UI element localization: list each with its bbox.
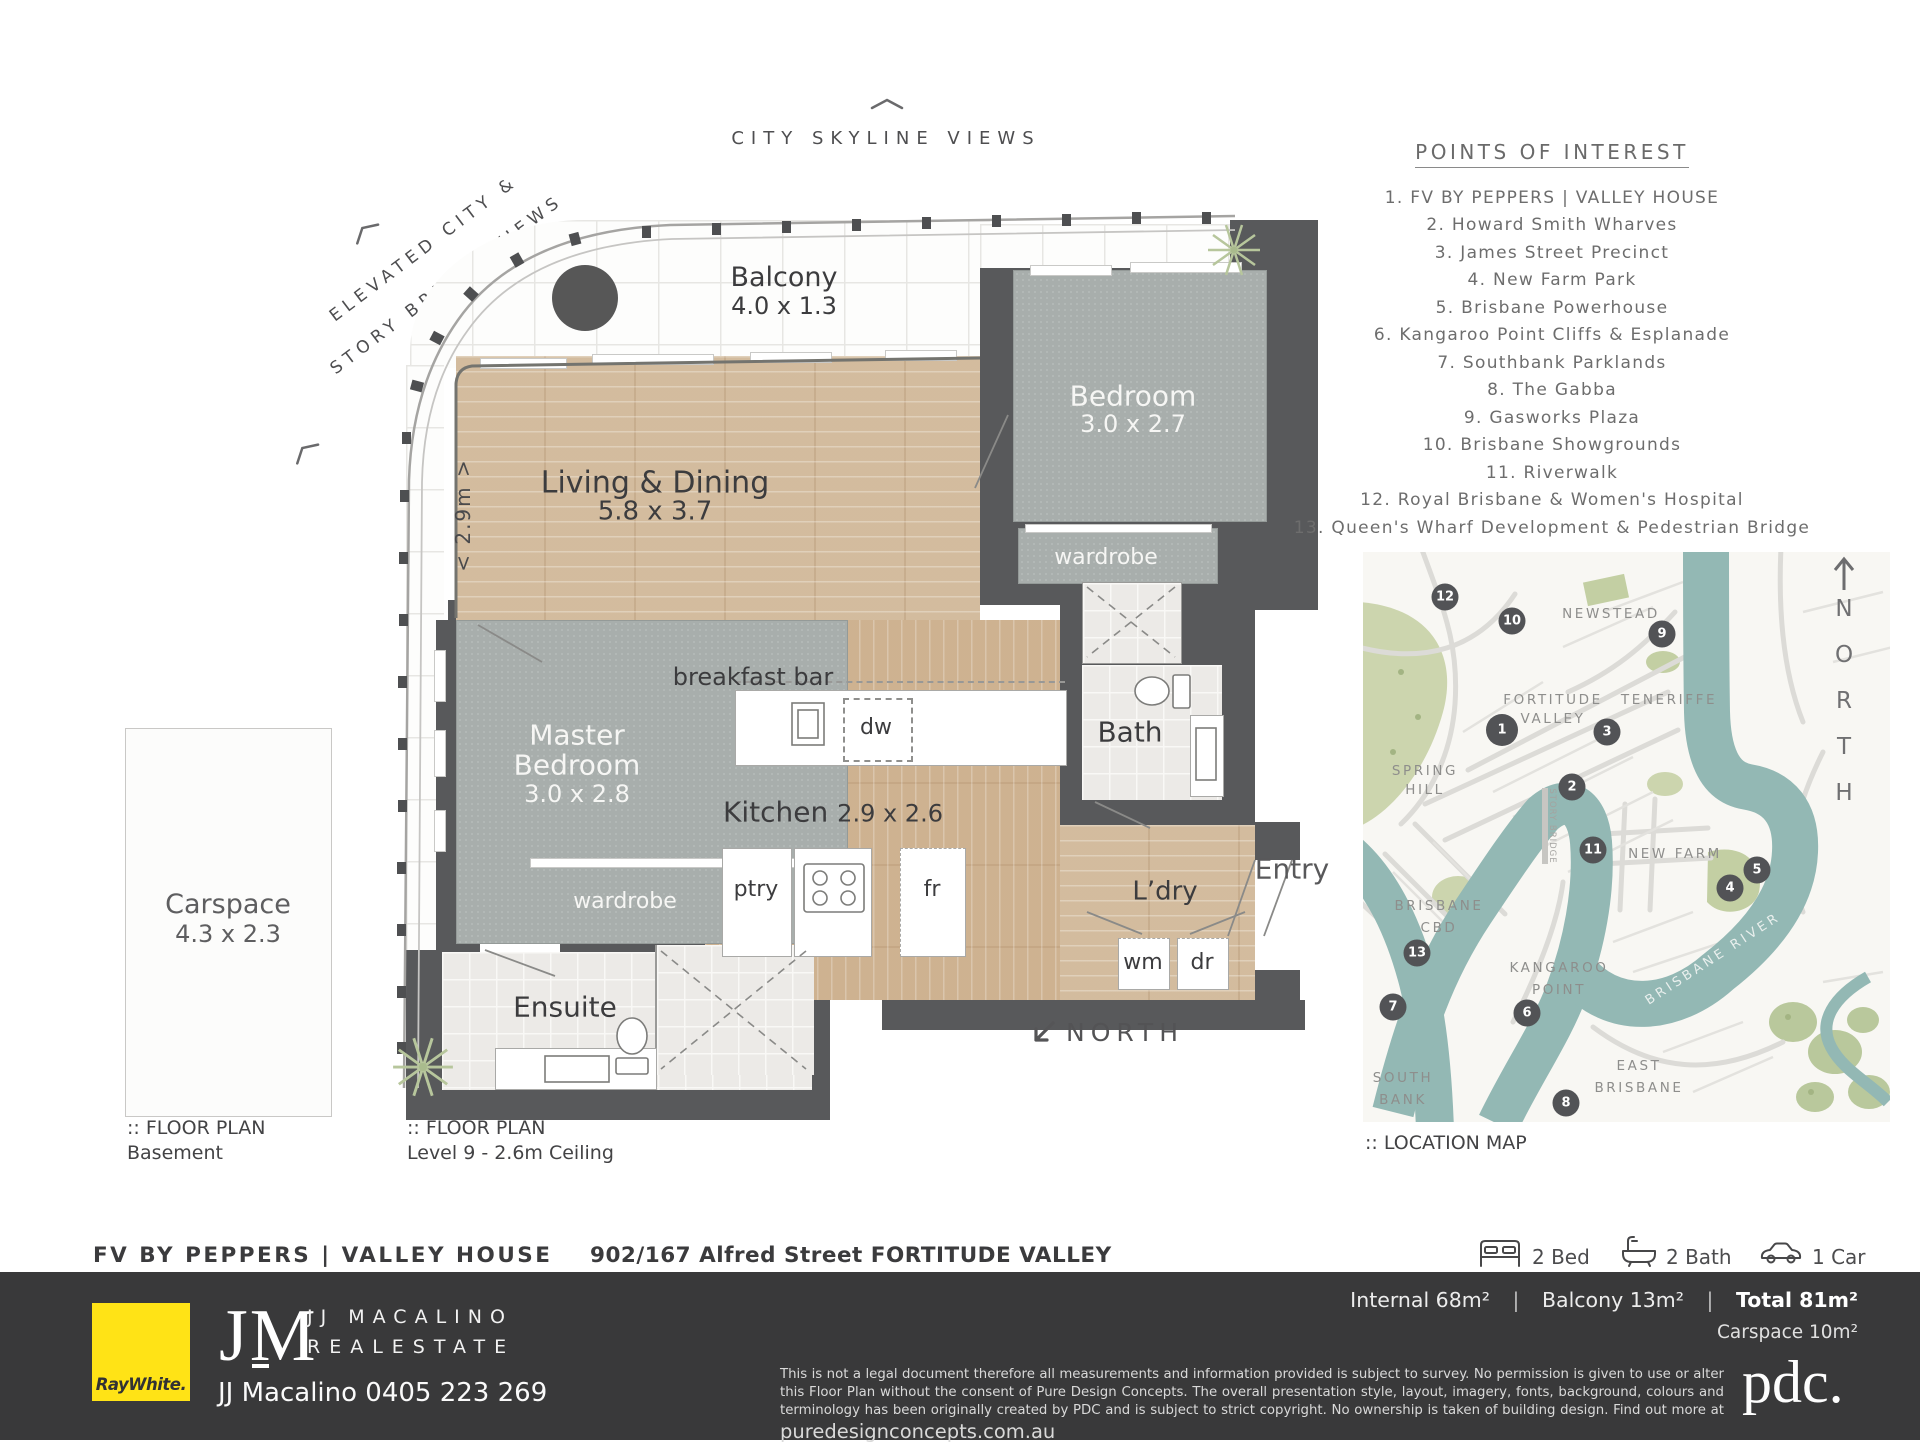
- poi-item: 9. Gasworks Plaza: [1192, 408, 1912, 428]
- total-area: Total 81m²: [1736, 1288, 1858, 1312]
- svg-text:3: 3: [1602, 725, 1611, 740]
- kitchen-dims: 2.9 x 2.6: [837, 800, 943, 828]
- elevated-views-caret2-icon: [288, 434, 323, 467]
- poi-title: POINTS OF INTEREST: [1415, 140, 1689, 168]
- marker-3: 3: [1594, 719, 1621, 746]
- floor-plan-sub: Level 9 - 2.6m Ceiling: [407, 1141, 614, 1166]
- dim-2-9m: < 2.9m >: [452, 458, 474, 572]
- footer: RayWhite. JM JJ MACALINO REALESTATE JJ M…: [0, 1272, 1920, 1440]
- carspace-label: Carspace: [165, 890, 291, 920]
- internal-area: Internal 68m²: [1350, 1288, 1490, 1312]
- city-views-label: CITY SKYLINE VIEWS: [731, 129, 1040, 149]
- agency-name-1: JJ MACALINO: [307, 1306, 513, 1328]
- poi-item: 6. Kangaroo Point Cliffs & Esplanade: [1192, 325, 1912, 345]
- floor-plan-tag: :: FLOOR PLAN: [127, 1116, 266, 1141]
- marker-4: 4: [1717, 875, 1744, 902]
- location-map: STORY BRIDGE BRISBANE RIVER NEWSTEAD FOR…: [1363, 552, 1890, 1122]
- agent-contact: JJ Macalino 0405 223 269: [218, 1378, 547, 1408]
- marker-10: 10: [1499, 608, 1526, 635]
- balcony-area: Balcony 13m²: [1542, 1288, 1684, 1312]
- separator: |: [1512, 1288, 1519, 1312]
- suburb-newstead: NEWSTEAD: [1562, 606, 1660, 622]
- laundry-label: L’dry: [1132, 878, 1197, 907]
- fridge-label: fr: [924, 878, 941, 902]
- carspace-area: Carspace 10m²: [1717, 1322, 1858, 1343]
- master-label-2: Bedroom: [514, 751, 641, 782]
- separator: |: [1707, 1288, 1714, 1312]
- map-north-label: NORTH: [1831, 596, 1857, 826]
- marker-6: 6: [1514, 1000, 1541, 1027]
- disclaimer-text: This is not a legal document therefore a…: [780, 1367, 1724, 1418]
- bath-label: Bath: [1097, 718, 1162, 749]
- kitchen-name: Kitchen: [723, 796, 828, 829]
- svg-text:1: 1: [1497, 723, 1506, 738]
- master-label-1: Master: [529, 721, 625, 752]
- poi-item: 1. FV BY PEPPERS | VALLEY HOUSE: [1192, 188, 1912, 208]
- bed-icon: [1478, 1236, 1522, 1268]
- points-of-interest: POINTS OF INTEREST 1. FV BY PEPPERS | VA…: [1192, 140, 1912, 545]
- poi-item: 7. Southbank Parklands: [1192, 353, 1912, 373]
- svg-text:5: 5: [1752, 863, 1761, 878]
- plan-north: NORTH: [1030, 1018, 1184, 1047]
- master-dims: 3.0 x 2.8: [524, 781, 630, 807]
- beds-value: 2 Bed: [1532, 1245, 1590, 1269]
- marker-5: 5: [1744, 857, 1771, 884]
- car-icon: [1758, 1237, 1804, 1267]
- svg-text:8: 8: [1561, 1096, 1570, 1111]
- suburb-fortitude1: FORTITUDE: [1503, 692, 1602, 708]
- suburb-cbd1: BRISBANE: [1394, 898, 1483, 914]
- suburb-kangaroo2: POINT: [1532, 982, 1586, 998]
- balcony-table: [552, 265, 618, 331]
- story-bridge-label: STORY BRIDGE: [1547, 788, 1557, 863]
- marker-7: 7: [1380, 994, 1407, 1021]
- entry-label: Entry: [1255, 855, 1330, 886]
- suburb-kangaroo1: KANGAROO: [1509, 960, 1608, 976]
- disclaimer: This is not a legal document therefore a…: [780, 1366, 1724, 1446]
- city-views-caret-icon: [868, 96, 906, 111]
- floor-plan-sub: Basement: [127, 1141, 266, 1166]
- svg-text:11: 11: [1584, 843, 1602, 858]
- plan-overlay: [330, 170, 1340, 1170]
- poi-item: 2. Howard Smith Wharves: [1192, 215, 1912, 235]
- svg-text:9: 9: [1657, 627, 1666, 642]
- baths-value: 2 Bath: [1666, 1245, 1732, 1269]
- suburb-spring1: SPRING: [1392, 763, 1458, 779]
- bedroom-dims: 3.0 x 2.7: [1080, 411, 1186, 437]
- pdc-logo: pdc.: [1742, 1348, 1844, 1417]
- suburb-east2: BRISBANE: [1594, 1080, 1683, 1096]
- svg-text:7: 7: [1388, 1000, 1397, 1015]
- raywhite-logo: RayWhite.: [92, 1303, 190, 1401]
- balcony-dims: 4.0 x 1.3: [731, 293, 837, 319]
- ensuite-label: Ensuite: [513, 993, 617, 1024]
- svg-text:13: 13: [1408, 946, 1426, 961]
- poi-item: 10. Brisbane Showgrounds: [1192, 435, 1912, 455]
- suburb-spring2: HILL: [1405, 782, 1445, 798]
- jm-underscore: [252, 1364, 269, 1368]
- north-arrow-sw-icon: [1030, 1020, 1056, 1046]
- poi-item: 3. James Street Precinct: [1192, 243, 1912, 263]
- poi-item: 11. Riverwalk: [1192, 463, 1912, 483]
- marker-12: 12: [1432, 584, 1459, 611]
- breakfast-bar-label: breakfast bar: [673, 664, 833, 690]
- svg-text:2: 2: [1567, 780, 1576, 795]
- suburb-newfarm: NEW FARM: [1628, 846, 1722, 862]
- marker-1: 1: [1486, 714, 1518, 746]
- area-metrics: Internal 68m² | Balcony 13m² | Total 81m…: [1350, 1288, 1858, 1312]
- svg-text:10: 10: [1503, 614, 1521, 629]
- agency-name-2: REALESTATE: [307, 1336, 515, 1358]
- kitchen-label: Kitchen 2.9 x 2.6: [723, 798, 943, 829]
- svg-text:4: 4: [1725, 881, 1734, 896]
- bath-icon: [1620, 1234, 1658, 1268]
- marker-2: 2: [1559, 774, 1586, 801]
- poi-item: 5. Brisbane Powerhouse: [1192, 298, 1912, 318]
- basement-plan-label: :: FLOOR PLAN Basement: [127, 1116, 266, 1166]
- floor-plan-tag: :: FLOOR PLAN: [407, 1116, 614, 1141]
- poi-item: 8. The Gabba: [1192, 380, 1912, 400]
- bedroom-label: Bedroom: [1070, 382, 1197, 413]
- property-name: FV BY PEPPERS | VALLEY HOUSE: [93, 1243, 552, 1268]
- plan-north-label: NORTH: [1066, 1018, 1184, 1047]
- marker-13: 13: [1404, 940, 1431, 967]
- wardrobe-label: wardrobe: [1054, 546, 1158, 570]
- svg-text:6: 6: [1522, 1006, 1531, 1021]
- cars-value: 1 Car: [1812, 1245, 1866, 1269]
- suburb-fortitude2: VALLEY: [1520, 711, 1585, 727]
- property-address: 902/167 Alfred Street FORTITUDE VALLEY: [590, 1243, 1112, 1268]
- raywhite-label: RayWhite.: [92, 1375, 190, 1394]
- marker-8: 8: [1553, 1090, 1580, 1117]
- suburb-east1: EAST: [1617, 1058, 1662, 1074]
- svg-text:12: 12: [1436, 590, 1454, 605]
- level9-plan-label: :: FLOOR PLAN Level 9 - 2.6m Ceiling: [407, 1116, 614, 1166]
- wm-label: wm: [1123, 951, 1162, 975]
- location-map-caption: :: LOCATION MAP: [1365, 1132, 1527, 1154]
- pantry-label: ptry: [734, 878, 779, 902]
- dishwasher-label: dw: [860, 716, 892, 740]
- wardrobe-label: wardrobe: [573, 890, 677, 914]
- suburb-south2: BANK: [1379, 1092, 1427, 1108]
- floorplan-flyer: { "header": { "city_views": "CITY SKYLIN…: [0, 0, 1920, 1440]
- poi-item: 4. New Farm Park: [1192, 270, 1912, 290]
- dryer-label: dr: [1190, 951, 1213, 975]
- marker-11: 11: [1580, 837, 1607, 864]
- living-label: Living & Dining: [541, 467, 770, 500]
- suburb-south1: SOUTH: [1373, 1070, 1433, 1086]
- carspace-dims: 4.3 x 2.3: [175, 921, 281, 947]
- map-north-arrow-icon: [1830, 554, 1858, 592]
- living-dims: 5.8 x 3.7: [598, 498, 713, 527]
- marker-9: 9: [1649, 621, 1676, 648]
- suburb-cbd2: CBD: [1421, 920, 1458, 936]
- floor-plan: Balcony 4.0 x 1.3 Living & Dining 5.8 x …: [330, 170, 1340, 1170]
- balustrade-posts: [397, 212, 1211, 1054]
- poi-item: 12. Royal Brisbane & Women's Hospital: [1192, 490, 1912, 510]
- suburb-teneriffe: TENERIFFE: [1620, 692, 1717, 708]
- poi-item: 13. Queen's Wharf Development & Pedestri…: [1192, 518, 1912, 538]
- balcony-label: Balcony: [730, 263, 837, 293]
